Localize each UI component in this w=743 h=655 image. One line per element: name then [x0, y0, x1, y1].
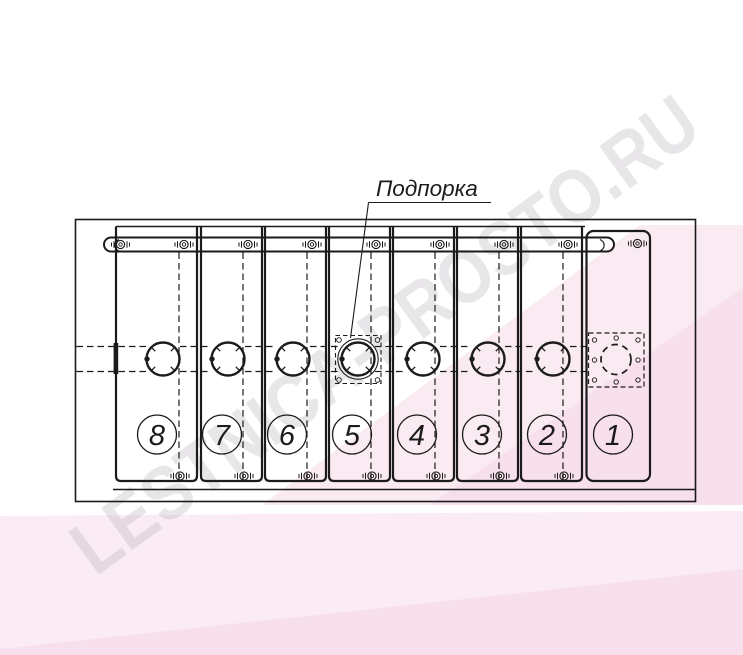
rail-fastener-3	[495, 240, 513, 248]
bottom-fastener-2	[555, 472, 573, 480]
bottom-fastener-3	[491, 472, 509, 480]
svg-text:3: 3	[474, 420, 490, 452]
section-number-2: 2	[528, 415, 567, 454]
leader-line	[351, 203, 369, 339]
bottom-fastener-6	[299, 472, 317, 480]
rail-fastener-right-end	[629, 239, 647, 247]
bottom-fastener-4	[427, 472, 445, 480]
hole-section-2	[534, 343, 569, 376]
bottom-fastener-8	[171, 472, 189, 480]
section-number-3: 3	[463, 415, 502, 454]
frame-and-rail	[76, 203, 696, 502]
panel-strip-7	[201, 227, 262, 482]
panel-strip-6	[265, 227, 326, 482]
svg-text:4: 4	[409, 420, 425, 452]
rail-fastener-5	[367, 240, 385, 248]
hole-section-8	[144, 343, 179, 376]
section-number-6: 6	[268, 415, 307, 454]
hole-section-7	[209, 343, 244, 376]
hole-section-4	[404, 343, 439, 376]
mounting-plate-hidden	[589, 333, 645, 387]
svg-text:5: 5	[344, 420, 361, 452]
outer-frame	[76, 220, 696, 502]
section-number-5: 5	[333, 415, 372, 454]
section-number-8: 8	[138, 415, 177, 454]
technical-drawing: Подпорка 87654321	[0, 0, 743, 655]
rail-fastener-7	[239, 240, 257, 248]
svg-text:6: 6	[279, 420, 296, 452]
svg-text:2: 2	[538, 420, 555, 452]
bottom-fastener-5	[363, 472, 381, 480]
hole-section-5	[339, 343, 374, 376]
rail-fastener-2	[559, 240, 577, 248]
rail-fastener-8	[175, 240, 193, 248]
rail-fastener-6	[303, 240, 321, 248]
section-number-7: 7	[203, 415, 242, 454]
hole-section-6	[274, 343, 309, 376]
bottom-fastener-7	[235, 472, 253, 480]
section-number-4: 4	[398, 415, 437, 454]
section-number-1: 1	[594, 415, 633, 454]
support-label: Подпорка	[376, 176, 478, 201]
rail-right-cap-arc	[600, 240, 604, 252]
svg-text:7: 7	[214, 420, 232, 452]
panel-sections: 87654321	[77, 227, 651, 482]
rail-fastener-4	[431, 240, 449, 248]
top-rail	[104, 238, 614, 252]
rail-fastener-left-end	[112, 240, 130, 248]
svg-text:1: 1	[605, 420, 621, 452]
svg-text:8: 8	[149, 420, 165, 452]
drawing-page: LESTNICA-PROSTO.RU Подпорка 87654321	[0, 0, 743, 655]
